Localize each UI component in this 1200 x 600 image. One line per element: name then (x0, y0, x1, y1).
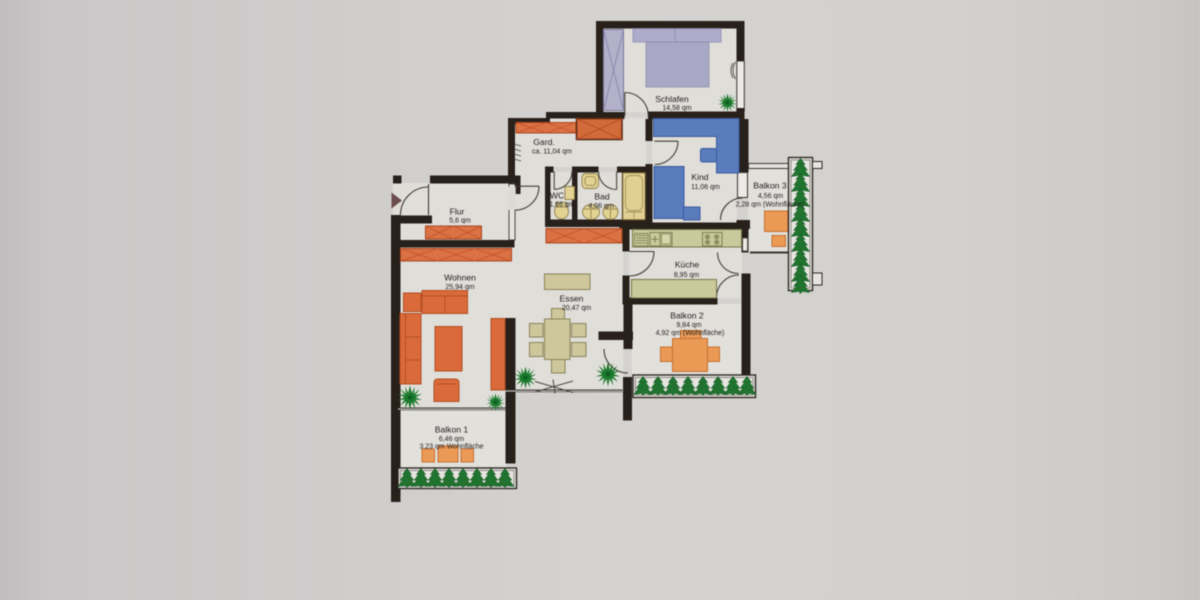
svg-text:4,92 qm (Wohnfläche): 4,92 qm (Wohnfläche) (656, 330, 725, 337)
svg-text:WC: WC (550, 191, 564, 201)
svg-text:Balkon 1: Balkon 1 (435, 425, 469, 435)
svg-text:Flur: Flur (450, 207, 465, 217)
svg-text:Balkon 3: Balkon 3 (753, 181, 787, 191)
svg-text:Wohnen: Wohnen (444, 273, 476, 283)
svg-text:Bad: Bad (594, 192, 610, 202)
svg-text:25,94 qm: 25,94 qm (445, 284, 474, 291)
svg-text:1,66 qm: 1,66 qm (549, 202, 574, 209)
svg-text:ca. 11,04 qm: ca. 11,04 qm (532, 149, 572, 156)
svg-text:8,95 qm: 8,95 qm (674, 272, 699, 279)
svg-text:Balkon 2: Balkon 2 (670, 311, 704, 321)
svg-text:6,46 qm: 6,46 qm (439, 436, 464, 443)
svg-text:Küche: Küche (675, 260, 700, 270)
svg-text:5,6 qm: 5,6 qm (449, 218, 471, 225)
svg-text:Schlafen: Schlafen (655, 94, 689, 104)
svg-text:14,58 qm: 14,58 qm (662, 105, 691, 112)
svg-text:Essen: Essen (560, 294, 584, 304)
svg-text:4,56 qm: 4,56 qm (758, 193, 783, 200)
svg-text:Kind: Kind (691, 172, 708, 182)
svg-text:11,06 qm: 11,06 qm (691, 184, 720, 191)
svg-text:20,47 qm: 20,47 qm (562, 305, 591, 312)
svg-text:2,28 qm (Wohnfläche): 2,28 qm (Wohnfläche) (736, 202, 805, 209)
svg-text:9,84 qm: 9,84 qm (676, 322, 701, 329)
svg-text:4,06 qm: 4,06 qm (588, 203, 613, 210)
svg-text:3,23 qm Wohnfläche: 3,23 qm Wohnfläche (419, 444, 483, 451)
svg-text:Gard.: Gard. (533, 137, 555, 147)
